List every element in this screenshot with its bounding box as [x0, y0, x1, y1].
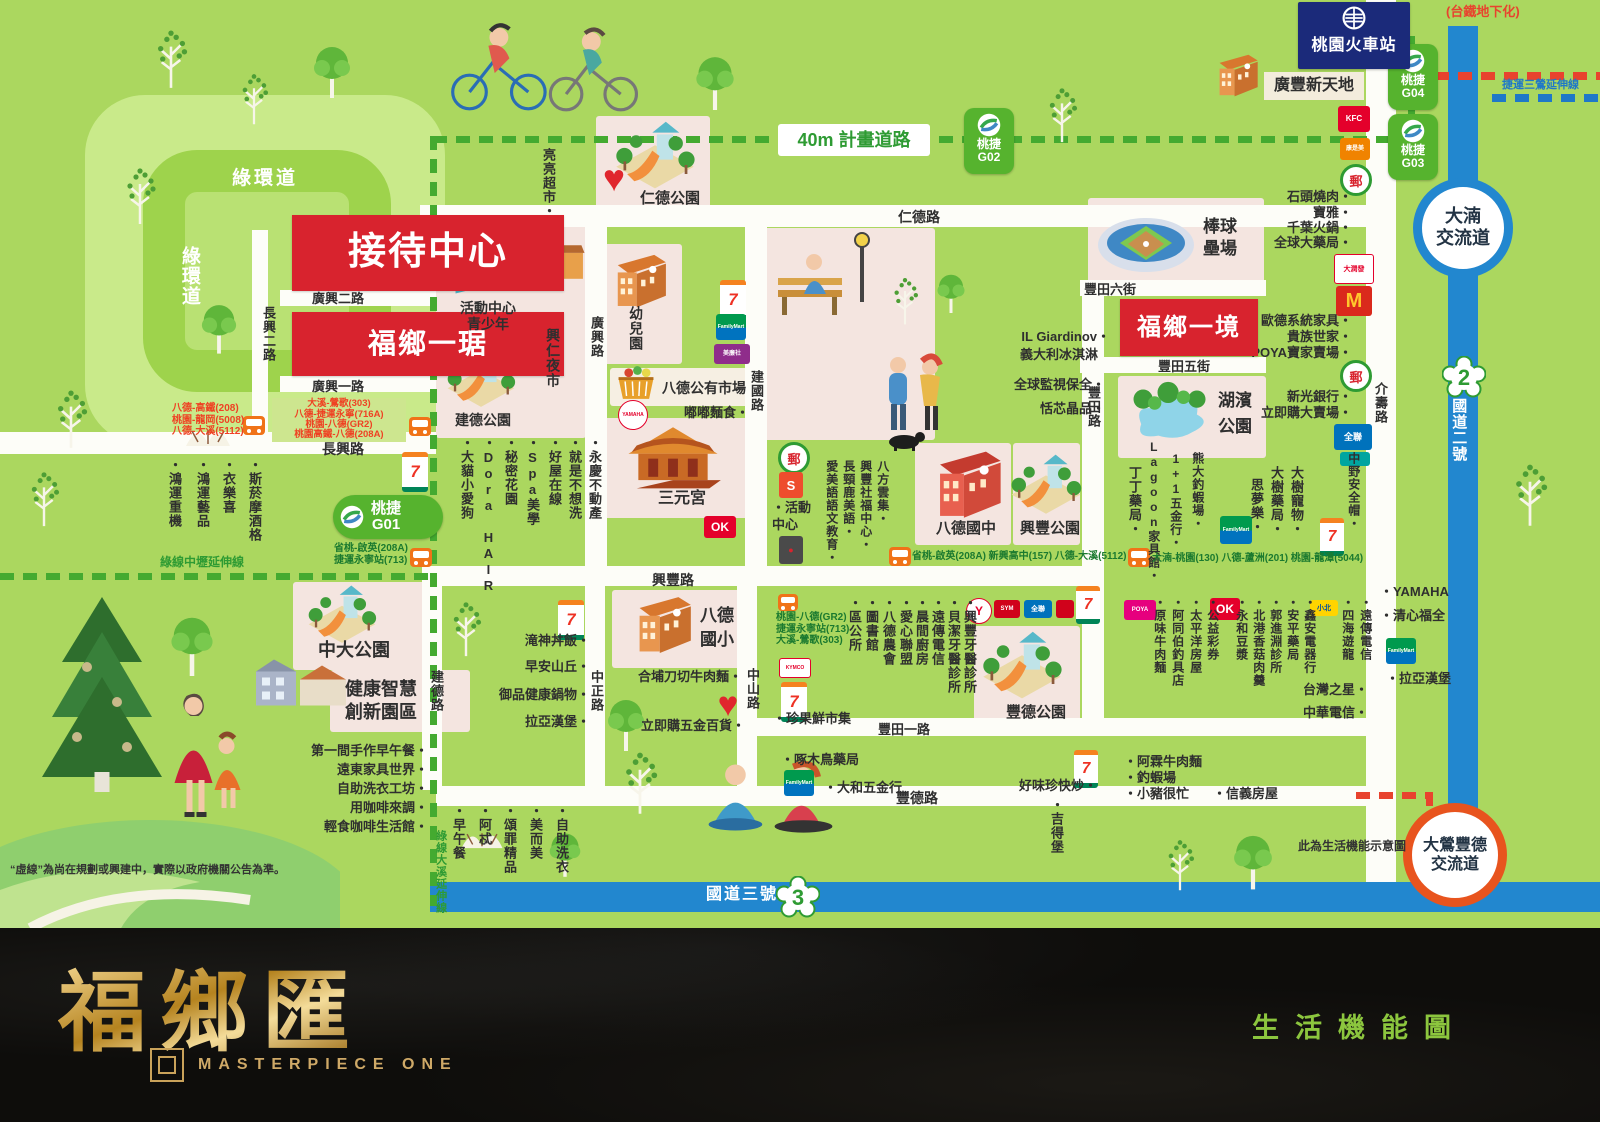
greenring-v: 綠環道 [178, 246, 200, 306]
il-giardinov: IL Giardinov・ [1021, 330, 1110, 345]
road-jiande-v: 建德路 [428, 670, 443, 712]
list-zhenguo-market: ・珍果鮮市集 [773, 712, 851, 727]
list-xingfeng-dental: ・興豐牙醫診所 [961, 596, 976, 694]
bus-lines-b: 八德-高鐵(208) 桃園-龍岡(5008) 八德-大溪(5112) [172, 403, 244, 438]
italian-icecream: 義大利冰淇淋 [1020, 348, 1098, 363]
mrt-g02-badge: 桃捷G02 [964, 108, 1014, 174]
list-hongyun-moto: ・鴻運重機 [166, 458, 181, 528]
list-atongbo-fishing: ・阿同伯釣具店 [1170, 596, 1184, 687]
list-yonghe-soymilk: ・永和豆漿 [1234, 596, 1248, 661]
list-ate: ・阿忒 [476, 804, 491, 846]
brand-logo-en: MASTERPIECE ONE [198, 1056, 458, 1074]
list-skbank: 新光銀行・ [1287, 390, 1352, 405]
tree-5 [1042, 86, 1082, 144]
list-liji-mart: 立即購大賣場・ [1261, 406, 1352, 421]
bus-lines-a: 大溪-鶯歌(303) 八德-捷運永寧(716A) 桃園-八德(GR2) 桃園高鐵… [272, 398, 406, 442]
tree-10 [446, 600, 486, 658]
mcdonalds-icon: M [1336, 286, 1372, 316]
reception-center: 接待中心 [292, 215, 564, 291]
list-pacific-house: ・太平洋房屋 [1188, 596, 1202, 674]
cyclists-illustration [438, 8, 648, 113]
taoyuan-metro-logo-icon [1400, 118, 1426, 144]
bus-icon-4 [889, 547, 911, 566]
red-store-icon [1056, 600, 1074, 618]
list-meiermei: ・美而美 [527, 804, 542, 860]
zhongda-playground [300, 584, 384, 646]
orange-tree [168, 612, 216, 676]
list-xinan-electric: ・鑫安電器行 [1302, 596, 1316, 674]
label-liangliang-market: 亮亮超市・ [540, 148, 555, 218]
tree-11 [606, 694, 646, 752]
jhs-building [920, 448, 1006, 526]
list-aimeiyu: 愛美語語文教育・ [824, 460, 838, 564]
hwy2-label: 國道二號 [1450, 398, 1467, 462]
list-yuanwei-beef: ・原味牛肉麵 [1152, 596, 1166, 674]
tra-logo-icon [1341, 5, 1367, 31]
pxmart-icon-1: 全聯 [1334, 424, 1372, 450]
xingren-night-market: 興仁夜市 [545, 328, 561, 388]
list-woodpecker-pharmacy: ・啄木鳥藥局 [781, 753, 859, 768]
road-jianguo: 建國路 [748, 370, 763, 412]
bade-junior-high: 八德國中 [936, 520, 996, 537]
tree-18 [618, 750, 662, 816]
list-stone-bbq: 石頭燒肉・ [1287, 190, 1352, 205]
list-beijie-dental: ・貝潔牙醫診所 [945, 596, 960, 694]
road-jieshou: 介壽路 [1372, 382, 1387, 424]
list-chiba-hotpot: 千葉火鍋・ [1287, 221, 1352, 236]
bade-elementary: 八德 國小 [700, 604, 734, 652]
mrt-sanying-ext: 捷運三鶯延伸線 [1502, 79, 1579, 92]
list-no-wash: ・就是不想洗 [566, 436, 581, 520]
tree-3 [312, 42, 352, 98]
familymart-icon-3: FamilyMart [784, 770, 814, 796]
list-dashu-pet: 大樹寵物・ [1288, 466, 1303, 536]
road-zhongzheng: 中正路 [588, 670, 603, 712]
road-xingfeng-strip [436, 566, 1082, 586]
road-fengtian-v: 豐田路 [1085, 386, 1100, 428]
list-global-pharmacy: 全球大藥局・ [1274, 236, 1352, 251]
bench-scene [772, 232, 892, 332]
label-40m-road: 40m 計畫道路 [778, 124, 930, 156]
tree-4 [694, 52, 736, 110]
taoyuan-station: 桃園火車站 [1298, 2, 1410, 69]
list-fareastone1: ・遠傳電信 [929, 596, 944, 666]
hilife-icon-2: ♥ [712, 690, 744, 718]
road-rende: 仁德路 [898, 209, 940, 225]
tree-2 [236, 72, 272, 126]
list-oder-furniture: 歐德系統家具・ [1261, 314, 1352, 329]
activity-center2: ・活動 中心 [772, 500, 811, 534]
list-anping-pharmacy: ・安平藥局 [1285, 596, 1299, 661]
bus-icon-1 [243, 416, 265, 435]
tree-14 [1508, 462, 1552, 528]
svg-text:2: 2 [1458, 365, 1470, 390]
xingfeng-playground [1010, 450, 1082, 520]
es-building [616, 594, 702, 660]
tree-15 [1232, 830, 1274, 890]
tree-7 [50, 388, 92, 450]
park-fengde: 豐德公園 [1006, 704, 1066, 721]
kfc-icon: KFC [1338, 106, 1370, 132]
familymart-icon-4: FamilyMart [1386, 638, 1416, 664]
bus-lines-e: 大湳-桃園(130) 八德-蘆洲(201) 桃園-龍潭(5044) [1152, 553, 1363, 565]
tree-1 [150, 28, 192, 90]
road-changxing2: 長興二路 [260, 306, 275, 362]
bus-lines-f: 桃園-八德(GR2) 捷運永寧站(713) 大溪-鶯歌(303) [776, 612, 849, 647]
list-zhongye-helmet: 中野安全帽・ [1346, 452, 1360, 530]
sanyuan-temple: 三元宮 [658, 490, 706, 508]
green-line-zhongli: 綠線中壢延伸線 [160, 556, 244, 570]
guangfeng-building [1208, 50, 1260, 104]
bus-icon-6 [778, 594, 798, 611]
list-haowu-online: ・好屋在線 [546, 436, 561, 506]
hubin-lake [1122, 380, 1218, 450]
list-first-brunch: 第一間手作早午餐・ [311, 744, 428, 759]
tree-12 [888, 276, 922, 326]
list-self-laundry: ・自助洗衣 [553, 804, 568, 874]
list-spa-beauty: ・Spa美學 [524, 436, 539, 526]
road-changxing: 長興路 [322, 441, 364, 457]
list-lottery: ・公益彩券 [1205, 596, 1219, 661]
daying-fengde-interchange: 大鶯豐德 交流道 [1403, 803, 1507, 907]
market-basket [614, 364, 658, 404]
disclaimer: “虛線”為尚在規劃或興建中，實際以政府機關公告為準。 [10, 864, 285, 877]
danan-interchange: 大湳 交流道 [1413, 178, 1513, 278]
note-map: 此為生活機能示意圖 [1298, 840, 1406, 854]
list-dingding-pharmacy: 丁丁藥局・ [1126, 466, 1141, 536]
mrt-g03-badge: 桃捷G03 [1388, 114, 1438, 180]
familymart-icon-1: FamilyMart [716, 314, 746, 340]
brand-row: MASTERPIECE ONE [150, 1048, 458, 1082]
list-laya-burger1: 拉亞漢堡・ [525, 715, 590, 730]
green-line-daxi: 綠線大溪延伸線 [434, 830, 447, 914]
list-poya-store: POYA寶家賣場・ [1251, 346, 1352, 361]
sitting-couple [688, 758, 853, 836]
road-zhongshan: 中山路 [744, 668, 759, 710]
road-fengtian5: 豐田五街 [1158, 360, 1210, 375]
list-dora-hair: ・Dora HAIR [480, 436, 495, 594]
life-function-map: KFC康是美郵大潤發M郵全聯♥77FamilyMart美廉社YAMAHA郵S●O… [0, 0, 1600, 1122]
list-dudu-noodle: 嘟嘟麵食・ [684, 406, 749, 421]
bus-icon-3 [410, 548, 432, 567]
list-secret-garden: ・秘密花園 [502, 436, 517, 506]
bus-icon-2 [409, 417, 431, 436]
park-jiande: 建德公園 [455, 412, 511, 428]
seven-eleven-icon-4: 7 [1076, 586, 1100, 624]
park-hubin: 湖濱 公園 [1218, 388, 1252, 439]
park-rende: 仁德公園 [640, 190, 700, 207]
svg-text:3: 3 [792, 885, 804, 910]
tree-6 [120, 166, 160, 226]
list-xingfeng-welfare: 興豐社福中心・ [858, 460, 872, 551]
activity-center-youth: 活動中心 青少年 [452, 300, 524, 332]
list-busy-pig: ・小豬很忙 [1124, 787, 1189, 802]
list-poya1: 寶雅・ [1313, 206, 1352, 221]
hill [0, 760, 340, 930]
road-guangxing1: 廣興一路 [312, 380, 364, 395]
post-office-icon-2: 郵 [1340, 360, 1372, 392]
list-morning-hill: 早安山丘・ [525, 660, 590, 675]
ok-mart-icon-1: OK [704, 516, 736, 538]
road-guangxing2: 廣興二路 [312, 292, 364, 307]
list-yamaha: ・YAMAHA [1380, 585, 1449, 600]
list-coffee-tune: 用咖啡來調・ [350, 801, 428, 816]
bus-lines-c: 省桃-啟英(208A) 捷運永寧站(713) [334, 543, 408, 566]
road-fengtian1: 豐田一路 [878, 723, 930, 738]
list-light-cafe: 輕食咖啡生活館・ [324, 820, 428, 835]
list-siyanmo: ・斯菸摩酒格 [246, 458, 261, 542]
post-office-icon-3: 郵 [778, 442, 810, 474]
list-guojinyuan-clinic: ・郭進淵診所 [1268, 596, 1282, 674]
factory-buildings [252, 652, 352, 710]
park-zhongda: 中大公園 [318, 640, 390, 661]
list-laundry-workshop: 自助洗衣工坊・ [337, 782, 428, 797]
health-smart-park: 健康智慧 創新園區 [345, 678, 417, 723]
list-yongching: ・永慶不動產 [586, 436, 601, 520]
hilife-icon-1: ♥ [598, 164, 630, 194]
tree-8 [200, 300, 238, 354]
stadium-illustration [1096, 206, 1196, 278]
list-yilexi: ・衣樂喜 [220, 458, 235, 514]
list-alin-beef: ・阿霖牛肉麵 [1124, 755, 1202, 770]
list-yupin-hotpot: 御品健康鍋物・ [499, 688, 590, 703]
greenring-h: 綠環道 [232, 168, 298, 190]
hwy3-shield: 3 [776, 876, 820, 920]
yamaha-icon-1: YAMAHA [618, 400, 648, 430]
simple-mart-icon: 美廉社 [714, 344, 750, 364]
baseball-field: 棒球 壘場 [1203, 216, 1237, 260]
list-cht: 中華電信・ [1303, 706, 1368, 721]
list-laya-burger2: ・拉亞漢堡 [1386, 672, 1451, 687]
brand-seal-icon [150, 1048, 184, 1082]
list-sihai-youlong: ・四海遊龍 [1340, 596, 1354, 661]
park-xingfeng: 興豐公園 [1020, 520, 1080, 537]
kindergarten: 幼兒園 [628, 306, 644, 351]
list-district-office: ・區公所 [846, 596, 861, 652]
list-library: ・圖書館 [863, 596, 878, 652]
dash-blue-sanying [1492, 94, 1600, 102]
list-fareastone2: ・遠傳電信 [1358, 596, 1372, 661]
tree-9 [24, 470, 64, 528]
cosmed-icon: 康是美 [1340, 138, 1370, 160]
list-beigang-mushroom: ・北港香菇肉羹 [1251, 596, 1265, 687]
tra-underground-note: (台鐵地下化) [1446, 5, 1520, 20]
kindergarten-building [598, 252, 674, 314]
tree-13 [936, 270, 966, 314]
list-shrimp-pond: ・釣蝦場 [1124, 771, 1176, 786]
pxmart-icon-2: 全聯 [1024, 600, 1052, 618]
hwy3-label: 國道三號 [706, 886, 778, 904]
list-simple-mart: 思夢樂・ [1248, 478, 1263, 534]
list-bade-farmers: ・八德農會 [880, 596, 895, 666]
tree-16 [1162, 838, 1198, 892]
list-brunch: ・早午餐 [450, 804, 465, 860]
list-longshen-don: 滝神丼飯・ [525, 634, 590, 649]
list-bafang: 八方雲集・ [875, 460, 889, 525]
list-morning-kitchen: ・晨間廚房 [913, 596, 928, 666]
crest-icon: ● [779, 536, 803, 564]
bus-lines-d: 省桃-啟英(208A) 新興高中(157) 八德-大溪(5112) [912, 551, 1126, 563]
couple-with-dog [876, 352, 956, 452]
list-liji-hardware: 立即購五金百貨・ [641, 719, 745, 734]
list-11-hardware: 1+1五金行・ [1168, 452, 1182, 549]
taoyuan-metro-logo-icon [976, 112, 1002, 138]
list-noble-family: 貴族世家・ [1287, 330, 1352, 345]
road-fengde: 豐德路 [896, 790, 938, 806]
list-aixin-alliance: ・愛心聯盟 [897, 596, 912, 666]
list-hepu-beef-noodle: 合埔刀切牛肉麵・ [638, 670, 742, 685]
temple-building [614, 424, 732, 490]
road-guangxing-v: 廣興路 [588, 316, 603, 358]
list-bear-shrimp: 熊大釣蝦場・ [1190, 452, 1204, 530]
kymco-icon: KYMCO [779, 658, 811, 678]
list-dashu-pharmacy: 大樹藥局・ [1268, 466, 1283, 536]
bade-public-market: 八德公有市場 [662, 380, 746, 396]
fuxiang-yijing: 福鄉一境 [1120, 299, 1258, 356]
rt-mart-icon: 大潤發 [1334, 254, 1374, 284]
list-damao-dog: ・大貓小愛狗 [458, 436, 473, 520]
list-songzui-boutique: ・頌罪精品 [501, 804, 516, 874]
list-qingxin: ・清心福全 [1380, 609, 1445, 624]
guangfeng-skyland: 廣豐新天地 [1264, 72, 1364, 100]
dash-green-zhongli [0, 573, 433, 580]
sym-icon: SYM [994, 600, 1020, 618]
list-fareast-furniture: 遠東家具世界・ [337, 763, 428, 778]
taoyuan-metro-logo-icon [339, 504, 365, 530]
list-xinyi-house: ・信義房屋 [1213, 787, 1278, 802]
shopee-icon: S [779, 472, 803, 498]
list-tstar: 台灣之星・ [1303, 683, 1368, 698]
seven-eleven-icon-6: 7 [1320, 518, 1344, 556]
list-haowei-stirfry: 好味珍快炒・ [1019, 779, 1097, 794]
hwy2-shield: 2 [1442, 356, 1486, 400]
list-jidebao: ・吉得堡 [1048, 798, 1063, 854]
seven-eleven-icon-1: 7 [402, 452, 428, 492]
road-fengtian6: 豐田六街 [1084, 283, 1136, 298]
mrt-g01-badge: 桃捷G01 [333, 495, 443, 539]
fengde-playground [980, 630, 1064, 702]
list-dahe-hardware: ・大和五金行 [824, 781, 902, 796]
list-giraffe-english: 長頸鹿美語・ [841, 460, 855, 538]
dash-red-daying-h [1356, 792, 1432, 799]
list-hongyun-art: ・鴻運藝品 [194, 458, 209, 528]
map-caption: 生活機能圖 [1252, 1006, 1467, 1045]
road-xingfeng: 興豐路 [652, 572, 694, 588]
